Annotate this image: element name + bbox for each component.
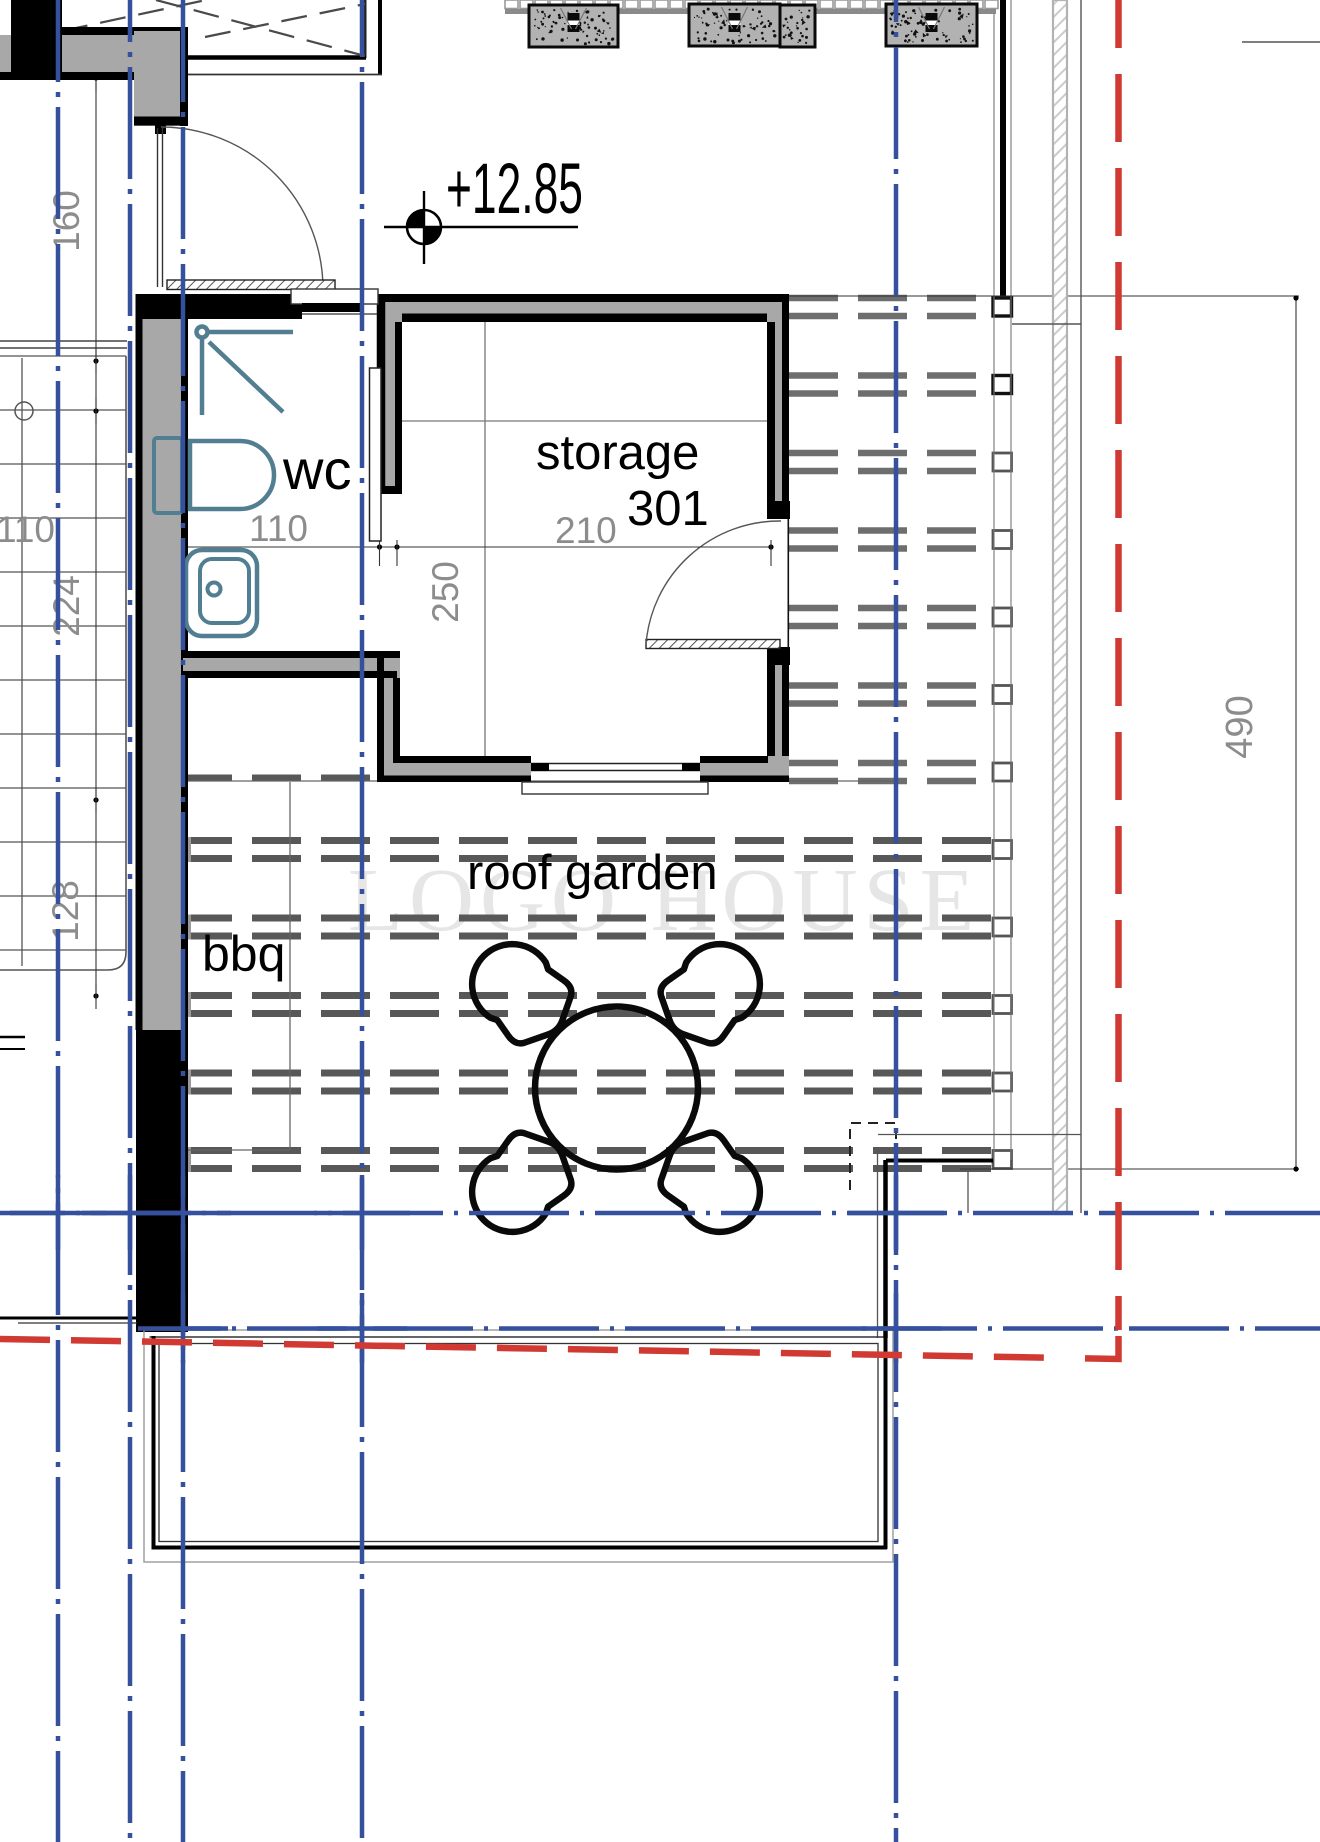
svg-text:160: 160	[46, 190, 87, 252]
svg-text:storage: storage	[536, 426, 699, 480]
svg-text:+12.85: +12.85	[446, 150, 583, 229]
svg-text:bbq: bbq	[202, 926, 285, 982]
svg-text:wc: wc	[282, 438, 351, 501]
svg-text:110: 110	[0, 509, 55, 550]
svg-text:210: 210	[555, 510, 617, 551]
svg-text:224: 224	[46, 575, 87, 637]
svg-text:roof garden: roof garden	[467, 846, 718, 900]
svg-text:301: 301	[627, 482, 709, 536]
svg-text:490: 490	[1219, 695, 1261, 758]
svg-text:250: 250	[425, 561, 466, 623]
svg-text:110: 110	[249, 508, 308, 549]
svg-text:128: 128	[45, 880, 86, 942]
